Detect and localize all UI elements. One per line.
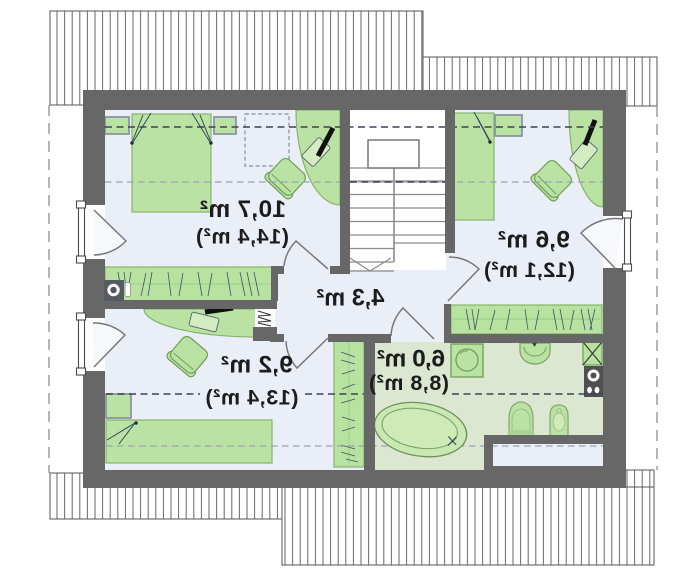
svg-text:(14,4 m²): (14,4 m²) <box>196 225 289 249</box>
svg-text:(8,8 m²): (8,8 m²) <box>369 371 449 395</box>
svg-text:9,2 m²: 9,2 m² <box>221 352 293 379</box>
svg-text:9,6 m²: 9,6 m² <box>498 227 570 254</box>
svg-text:(13,4 m²): (13,4 m²) <box>206 386 299 410</box>
svg-text:4,3 m²: 4,3 m² <box>317 285 385 312</box>
svg-text:(12,1 m²): (12,1 m²) <box>484 258 575 282</box>
svg-text:6,0 m²: 6,0 m² <box>377 346 445 373</box>
svg-text:10,7 m²: 10,7 m² <box>200 196 286 223</box>
